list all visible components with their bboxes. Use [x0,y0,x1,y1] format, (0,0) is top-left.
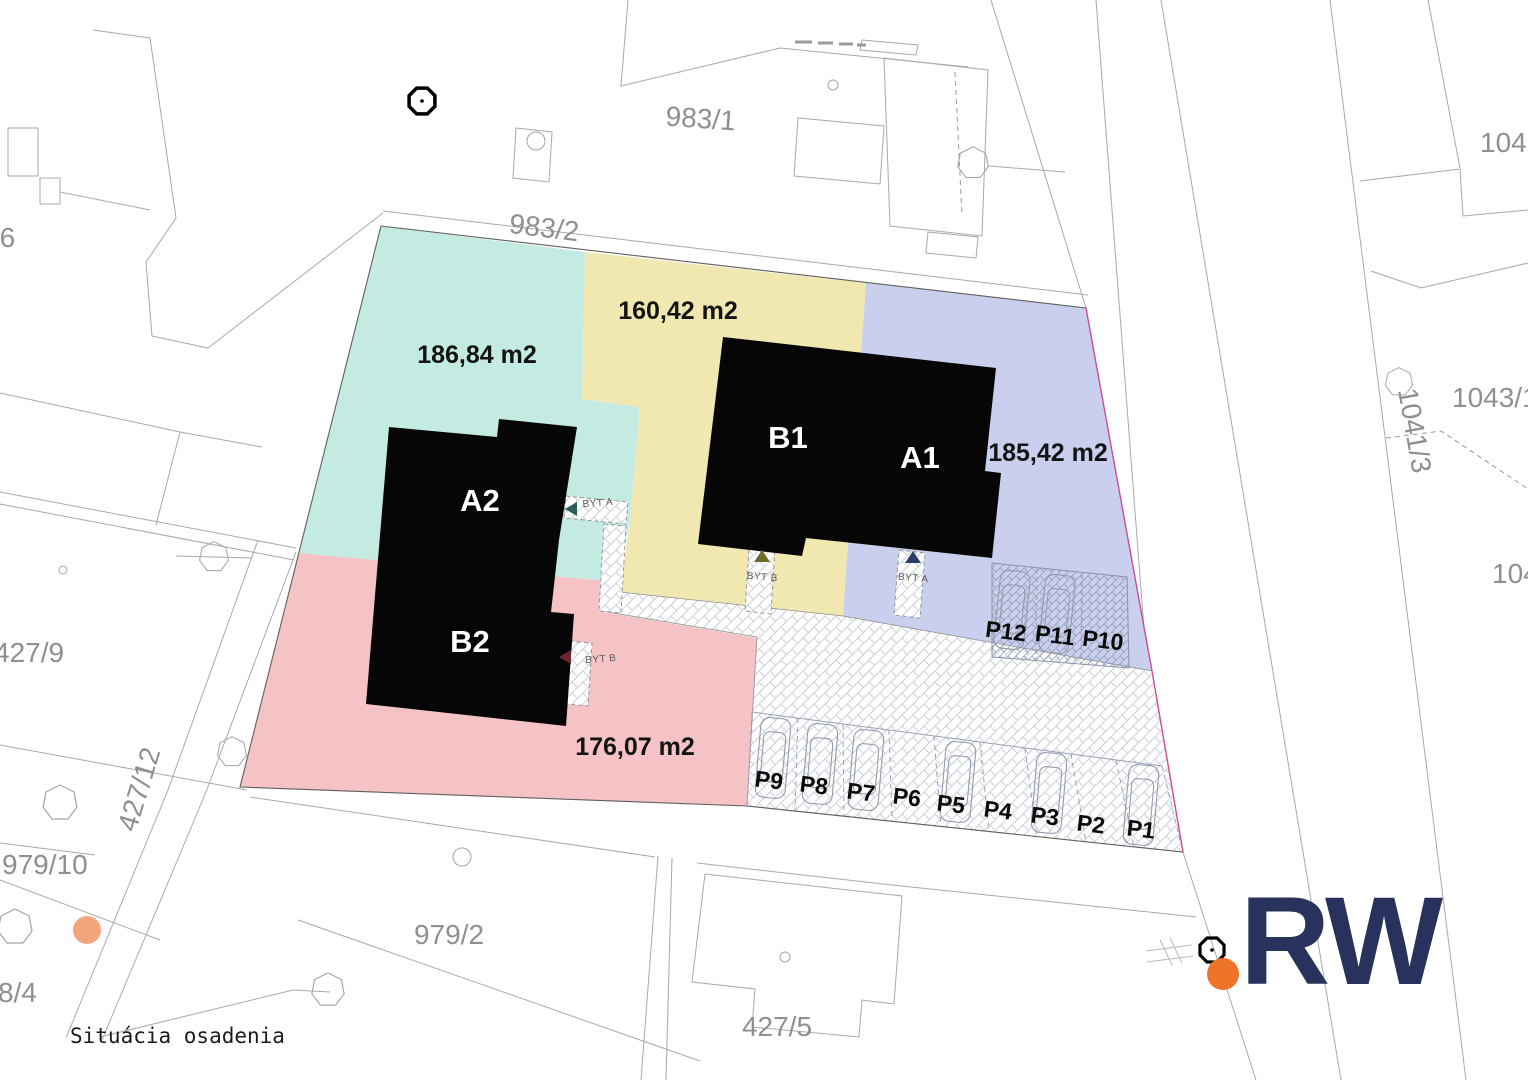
area-label-blue: 185,42 m2 [988,439,1108,467]
building-label-b2: B2 [450,624,490,659]
tree-dot-icon [73,916,101,944]
parcel-label-979-2: 979/2 [414,919,484,950]
entrance-label-a2: BYT A [582,497,613,510]
tree-icon [312,973,344,1005]
page-title: Situácia osadenia [70,1024,285,1048]
parcel-label-8-4: 8/4 [0,977,37,1008]
parking-label-p12: P12 [984,616,1028,647]
parking-label-p3: P3 [1029,801,1060,830]
parcel-label-979-10: 979/10 [2,849,88,880]
parking-label-p11: P11 [1034,620,1077,651]
parcel-label-96: 96 [0,222,15,253]
building-label-a1: A1 [900,440,940,475]
area-label-yellow: 160,42 m2 [618,297,738,325]
parking-label-p10: P10 [1081,625,1125,656]
survey-point-icon [409,88,435,114]
tree-icon [200,542,229,571]
parcel-label-104: 104 [1492,558,1528,589]
parcel-label-427-5: 427/5 [742,1011,812,1042]
building-label-a2: A2 [460,483,500,518]
tree-icon [0,909,32,943]
parking-label-p1: P1 [1125,814,1156,843]
tree-icon [218,737,247,766]
clipped-parcel-label-fragment [795,42,866,45]
tree-icon [43,785,77,819]
parcel-label-1043-1: 1043/1 [1452,382,1528,413]
rw-logo: RW [1207,872,1443,1011]
building-label-b1: B1 [768,420,808,455]
parking-label-p2: P2 [1075,809,1106,838]
parking-label-p8: P8 [798,770,829,799]
parking-label-p9: P9 [753,765,784,794]
area-label-pink: 176,07 m2 [575,733,695,761]
rw-logo-dot-icon [1207,958,1239,990]
site-plan-canvas: A2 B2 B1 A1 BYT A BYT B BYT B BYT A 186,… [0,0,1528,1080]
parcel-label-427-9: 427/9 [0,637,64,668]
parking-label-p6: P6 [891,782,922,811]
tree-icon [958,147,989,178]
parking-label-p7: P7 [845,777,876,806]
parcel-label-983-1: 983/1 [665,101,737,137]
entrance-label-b2: BYT B [585,653,617,666]
building-a2-b2-footprint [366,419,577,726]
area-label-teal: 186,84 m2 [417,341,537,369]
parking-label-p4: P4 [982,795,1013,824]
parcel-label-983-2: 983/2 [507,208,580,247]
rw-logo-text: RW [1240,872,1443,1011]
parcel-label-1045: 1045 [1480,127,1528,158]
building-b1-a1-footprint [698,337,1001,558]
parcel-label-1041-3: 1041/3 [1392,386,1437,476]
parcel-label-427-12: 427/12 [112,744,167,835]
parking-label-p5: P5 [935,789,966,818]
